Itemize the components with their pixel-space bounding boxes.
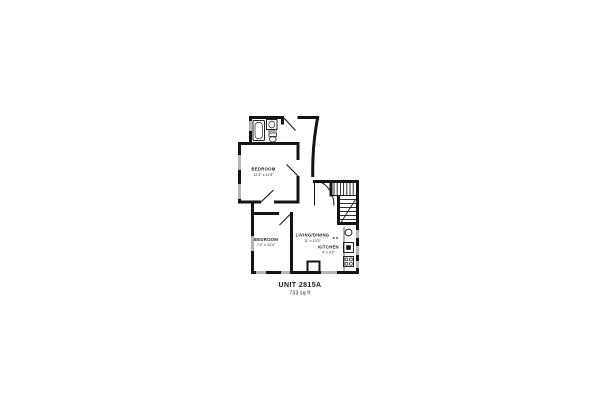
floor-plan-page: BATH BEDROOM 12'3" x 11'9" BEDROOM 7'4" …	[0, 0, 600, 400]
sink-icon	[269, 121, 275, 128]
burner-icon	[345, 258, 348, 261]
window-kitchen-2	[356, 246, 359, 255]
oven-door	[346, 245, 351, 250]
window-bottom-1	[256, 271, 266, 274]
unit-name: UNIT 2815A	[279, 282, 322, 289]
hall-bedroom-door-leaf	[261, 190, 274, 202]
room-dims-bedroom-upper: 12'3" x 11'9"	[253, 173, 274, 177]
window-kitchen-3	[356, 261, 359, 268]
burner-icon	[349, 258, 352, 261]
toilet-icon	[269, 137, 276, 142]
stairs-icon	[333, 182, 357, 223]
walls	[238, 116, 359, 274]
symbol-dot	[333, 237, 335, 239]
room-label-kitchen: KITCHEN	[318, 245, 339, 250]
symbol-dot	[336, 237, 338, 239]
unit-area: 733 sq ft	[290, 291, 311, 297]
room-dims-bedroom-lower: 7'4" x 13'4"	[257, 243, 276, 247]
window-bottom-2	[281, 271, 290, 274]
room-label-living-dining: LIVING/DINING	[296, 233, 330, 238]
bedroom-upper-door-leaf	[287, 165, 299, 177]
toilet-tank-icon	[269, 133, 277, 137]
bathtub-inner	[255, 123, 263, 139]
window-kitchen-1	[356, 230, 359, 238]
window-bottom-3	[321, 271, 337, 274]
room-dims-living-dining: 11' x 13'3"	[304, 239, 322, 243]
door-leaves	[261, 118, 298, 225]
bottom-niche	[308, 262, 320, 273]
window-bedroom-upper-1	[238, 155, 241, 170]
window-bath-left	[249, 121, 252, 131]
burner-icon	[349, 262, 352, 265]
kitchen-fixtures	[344, 227, 354, 271]
top-entry-door-leaf	[284, 118, 296, 131]
room-dims-kitchen: 4' x 9'2"	[322, 251, 336, 255]
room-label-bath: BATH	[268, 129, 277, 133]
floor-plan-canvas: BATH BEDROOM 12'3" x 11'9" BEDROOM 7'4" …	[0, 0, 600, 400]
window-bedroom-upper-2	[238, 184, 241, 199]
room-label-bedroom-lower: BEDROOM	[254, 237, 278, 242]
room-label-bedroom-upper: BEDROOM	[251, 167, 275, 172]
water-heater-icon	[345, 229, 352, 236]
burner-icon	[345, 262, 348, 265]
bedroom-lower-door-leaf	[280, 214, 292, 226]
